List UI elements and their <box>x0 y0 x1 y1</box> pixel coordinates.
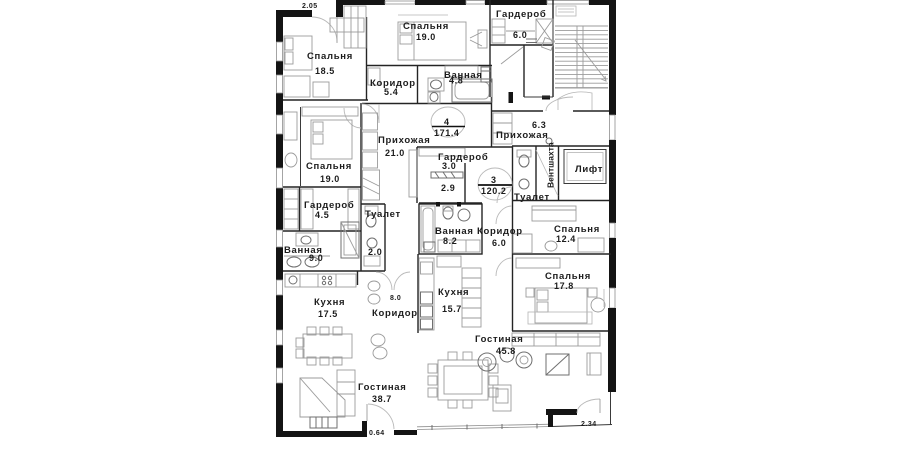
svg-text:Гостиная: Гостиная <box>358 382 407 393</box>
svg-text:5.4: 5.4 <box>384 87 398 97</box>
svg-text:12.4: 12.4 <box>556 234 576 244</box>
svg-text:6.3: 6.3 <box>532 120 546 130</box>
svg-text:4.5: 4.5 <box>315 210 329 220</box>
svg-text:2.9: 2.9 <box>441 183 455 193</box>
svg-text:9.0: 9.0 <box>309 253 323 263</box>
svg-text:Гардероб: Гардероб <box>496 9 547 20</box>
svg-text:Гостиная: Гостиная <box>475 334 524 345</box>
svg-text:19.0: 19.0 <box>416 32 436 42</box>
svg-text:171.4: 171.4 <box>434 128 460 138</box>
svg-text:4.8: 4.8 <box>449 76 463 86</box>
svg-text:120.2: 120.2 <box>481 186 507 196</box>
svg-text:Прихожая: Прихожая <box>378 135 430 146</box>
svg-text:2.0: 2.0 <box>368 247 382 257</box>
svg-text:4: 4 <box>444 117 450 127</box>
svg-text:18.5: 18.5 <box>315 66 335 76</box>
svg-text:3: 3 <box>491 175 497 185</box>
svg-text:2.34: 2.34 <box>581 421 597 428</box>
svg-text:6.0: 6.0 <box>492 238 506 248</box>
svg-text:Вентшахта: Вентшахта <box>546 142 556 188</box>
svg-text:19.0: 19.0 <box>320 174 340 184</box>
svg-text:0.64: 0.64 <box>369 430 385 437</box>
svg-text:8.0: 8.0 <box>390 295 401 302</box>
svg-text:17.8: 17.8 <box>554 281 574 291</box>
svg-text:17.5: 17.5 <box>318 309 338 319</box>
svg-text:6.0: 6.0 <box>513 30 527 40</box>
svg-text:8.2: 8.2 <box>443 236 457 246</box>
svg-text:15.7: 15.7 <box>442 304 462 314</box>
svg-text:2.05: 2.05 <box>302 3 318 10</box>
svg-text:Спальня: Спальня <box>403 21 449 32</box>
svg-text:Лифт: Лифт <box>575 164 603 175</box>
svg-text:Спальня: Спальня <box>307 51 353 62</box>
svg-text:Туалет: Туалет <box>514 192 550 203</box>
svg-text:Спальня: Спальня <box>306 161 352 172</box>
svg-text:21.0: 21.0 <box>385 148 405 158</box>
svg-text:3.0: 3.0 <box>442 161 456 171</box>
svg-text:38.7: 38.7 <box>372 394 392 404</box>
svg-text:Коридор: Коридор <box>477 226 523 237</box>
svg-text:Кухня: Кухня <box>314 297 345 308</box>
svg-text:Коридор: Коридор <box>372 308 418 319</box>
svg-text:Кухня: Кухня <box>438 287 469 298</box>
svg-text:Туалет: Туалет <box>365 209 401 220</box>
svg-text:Прихожая: Прихожая <box>496 130 548 141</box>
svg-text:45.8: 45.8 <box>496 346 516 356</box>
